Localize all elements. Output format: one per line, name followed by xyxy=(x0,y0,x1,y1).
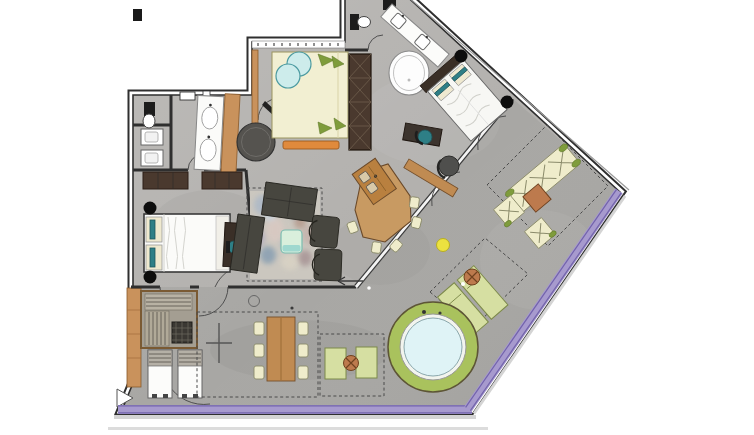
bathtub-drain xyxy=(408,79,411,82)
chair-icon xyxy=(254,366,264,379)
column-icon xyxy=(144,202,157,215)
sun-lounger-icon xyxy=(178,350,202,398)
round-shower-icon xyxy=(237,123,275,161)
chair-icon xyxy=(298,322,308,335)
toilet-bowl xyxy=(143,114,155,128)
bedroom-top xyxy=(272,52,371,150)
chair-icon xyxy=(254,344,264,357)
sun-lounger-icon xyxy=(148,350,172,398)
wood-clad-wall xyxy=(127,288,141,387)
floor-plan-drawing xyxy=(0,0,754,435)
facade-outer-band xyxy=(114,415,476,419)
sink-basin xyxy=(145,132,158,142)
pillow-stripe xyxy=(150,248,155,267)
column-icon xyxy=(144,271,157,284)
parasol-icon xyxy=(344,356,359,371)
sink-basin xyxy=(145,153,158,163)
sun-lounger-icon xyxy=(356,347,377,378)
armchair-icon xyxy=(439,156,459,176)
guest-bed-icon xyxy=(144,214,230,272)
wall-cabinet xyxy=(180,92,195,100)
jet-dot xyxy=(422,310,426,314)
floor-plan-screenshot xyxy=(0,0,754,435)
hot-tub-icon xyxy=(388,302,478,392)
coffee-table-icon xyxy=(281,230,302,253)
sofa-icon xyxy=(261,182,317,222)
pillow-stripe xyxy=(150,220,155,239)
storage-bench xyxy=(143,172,188,189)
toilet-bowl xyxy=(358,17,371,28)
marker-dot xyxy=(461,282,465,286)
floor-light-icon xyxy=(437,239,450,252)
armchair-icon xyxy=(312,249,342,281)
stool-back xyxy=(226,241,230,253)
storage-bench xyxy=(202,172,242,189)
sun-lounger-icon xyxy=(325,348,346,379)
armchair-icon xyxy=(308,215,340,249)
outdoor-dining-set xyxy=(254,317,308,381)
marker-dot xyxy=(367,286,371,290)
spot-dot xyxy=(438,311,441,314)
chair-icon xyxy=(298,366,308,379)
wardrobe-icon xyxy=(349,54,371,150)
column-icon xyxy=(455,50,468,63)
double-vanity-icon xyxy=(194,95,224,170)
ground-shadow-line xyxy=(108,427,488,430)
stool-icon xyxy=(371,241,381,253)
chair-icon xyxy=(298,344,308,357)
cutoff-wall-fragment xyxy=(133,9,142,21)
column-icon xyxy=(501,96,514,109)
bed-bench xyxy=(283,141,339,149)
sauna-icon xyxy=(141,291,197,348)
spot-dot xyxy=(290,306,293,309)
pouf-icon xyxy=(276,64,300,88)
chair-icon xyxy=(254,322,264,335)
stool-icon xyxy=(409,196,419,208)
parasol-icon xyxy=(464,269,480,285)
